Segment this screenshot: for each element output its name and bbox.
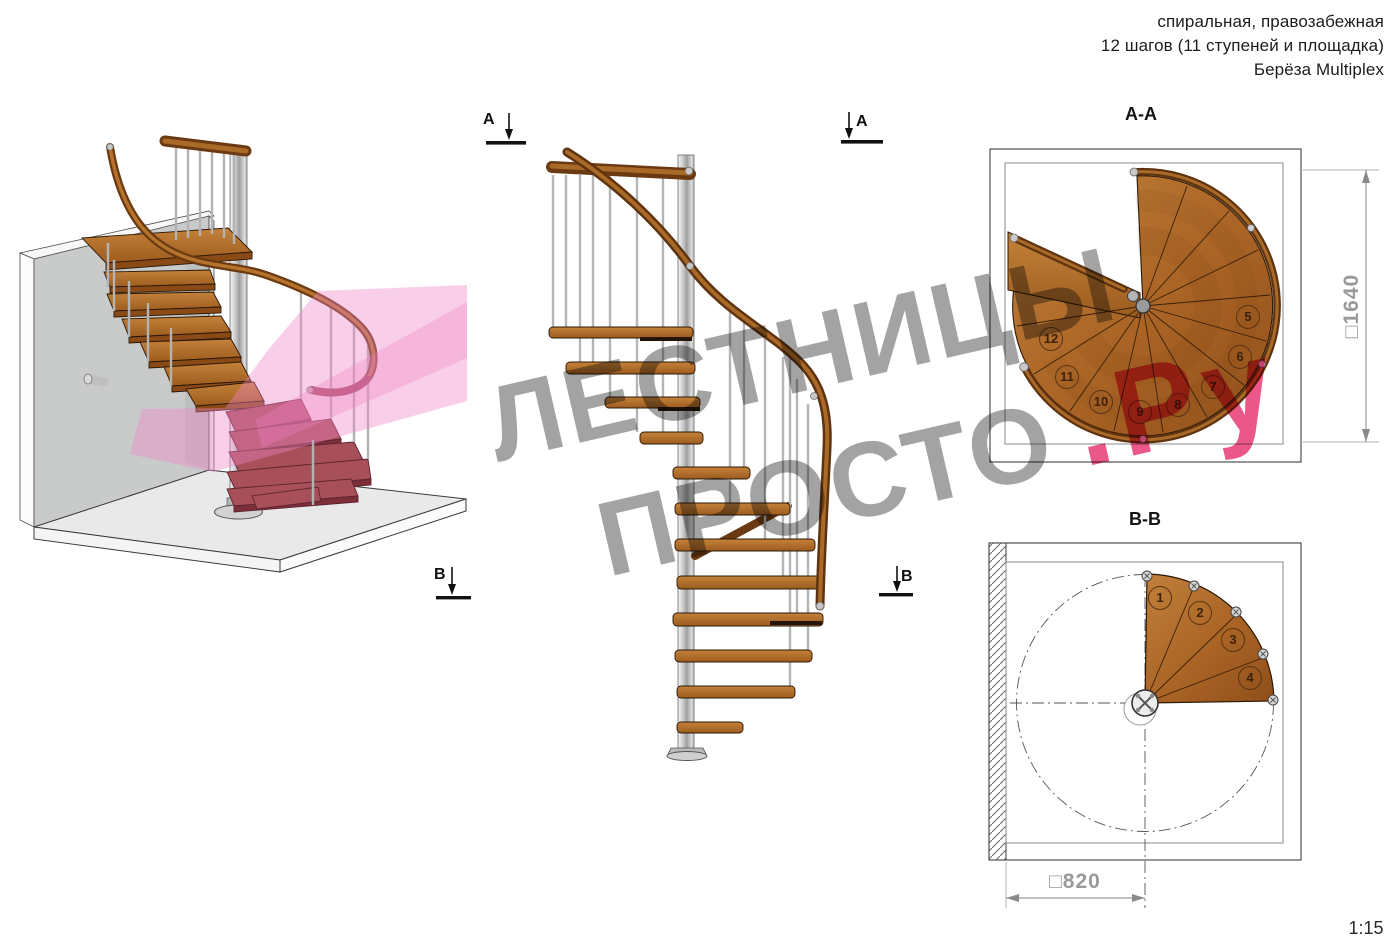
plan-aa-title: A-A [1105,104,1177,125]
scale-label: 1:15 [1340,918,1392,939]
step-number-badge: 4 [1238,666,1262,690]
plan-bb-title: B-B [1109,509,1181,530]
marker-a-left-letter: A [483,111,495,129]
marker-b-right-letter: B [901,568,913,586]
title-block: спиральная, правозабежная 12 шагов (11 с… [1101,10,1384,82]
plan-view-bb [989,543,1301,908]
dimension-820: □820 [1036,870,1114,894]
title-line-steps: 12 шагов (11 ступеней и площадка) [1101,34,1384,58]
dimension-1640: □1640 [1340,256,1364,356]
step-number-badge: 3 [1221,628,1245,652]
marker-a-right-letter: A [856,113,868,131]
perspective-view [20,141,471,599]
title-line-type: спиральная, правозабежная [1101,10,1384,34]
marker-b-left-letter: B [434,566,446,584]
bb-wall-hatch [989,543,1006,860]
title-line-material: Берёза Multiplex [1101,58,1384,82]
step-number-badge: 1 [1148,586,1172,610]
step-number-badge: 2 [1188,601,1212,625]
staircase-drawing-page: { "header": { "line1": "спиральная, прав… [0,0,1400,943]
